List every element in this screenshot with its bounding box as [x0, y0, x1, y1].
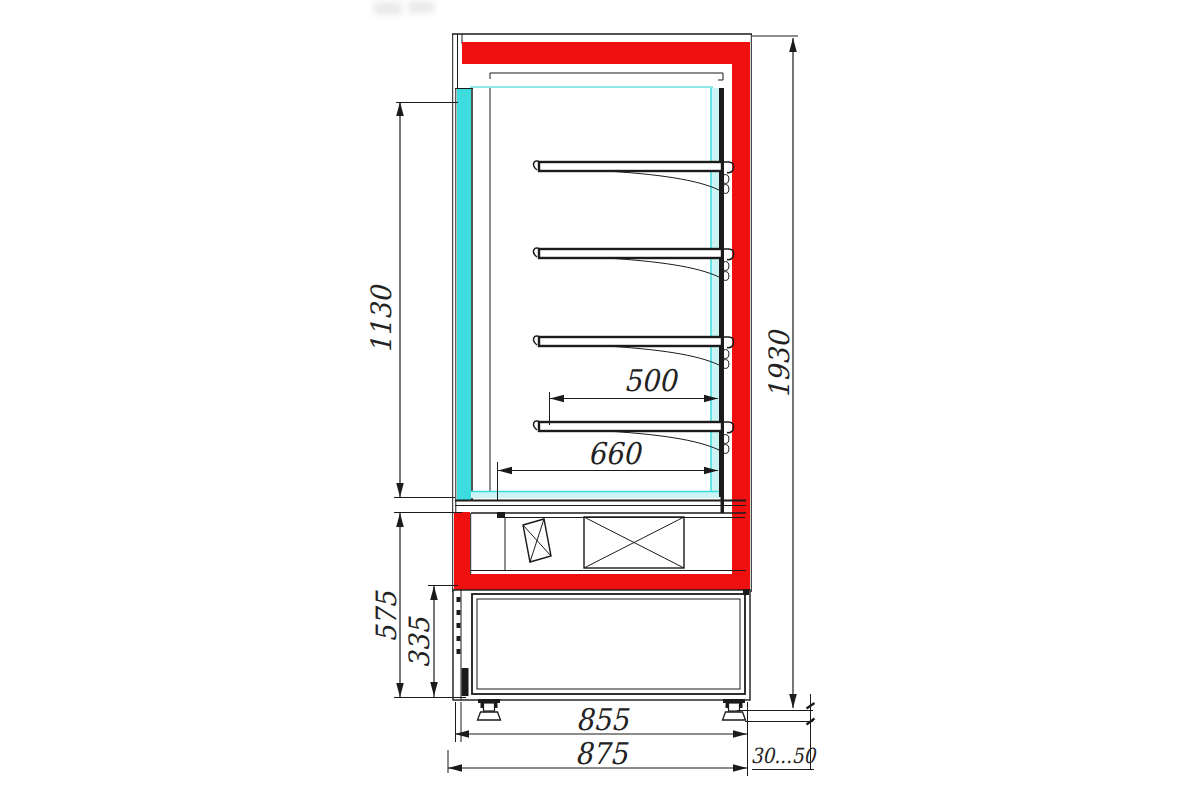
shelf-2: [534, 248, 734, 280]
interior-floor: [455, 491, 746, 506]
base-unit: [453, 589, 750, 700]
front-glass-panel: [455, 88, 490, 512]
technical-drawing: [0, 0, 1200, 800]
dim-interior-depth-label: 660: [588, 439, 641, 469]
dim-shelf-depth-label: 500: [624, 366, 677, 396]
adjustable-foot-rear: [723, 699, 746, 720]
dim-interior-height: [394, 102, 458, 498]
dim-base-width-label: 855: [576, 705, 629, 735]
fan-icon: [523, 519, 551, 562]
adjustable-foot-front: [478, 699, 501, 720]
red-insulation-frame: [454, 42, 750, 590]
dim-base-inner-height-label: 335: [406, 618, 434, 669]
fan-compartment: [471, 512, 746, 574]
cabinet-outer-frame: [452, 34, 752, 592]
evaporator-icon: [584, 517, 684, 568]
dim-wall-clearance-label: 30...50: [751, 746, 816, 767]
dim-overall-depth-label: 875: [575, 739, 628, 769]
dim-base-section-height-label: 575: [373, 592, 401, 643]
drawing-canvas: 1130 1930 500 660 575 335 855 875 30...5…: [0, 0, 1200, 800]
dim-overall-height-label: 1930: [766, 331, 794, 399]
dim-interior-height-label: 1130: [368, 286, 396, 354]
shelf-1: [534, 161, 734, 193]
interior-ceiling: [470, 73, 723, 87]
